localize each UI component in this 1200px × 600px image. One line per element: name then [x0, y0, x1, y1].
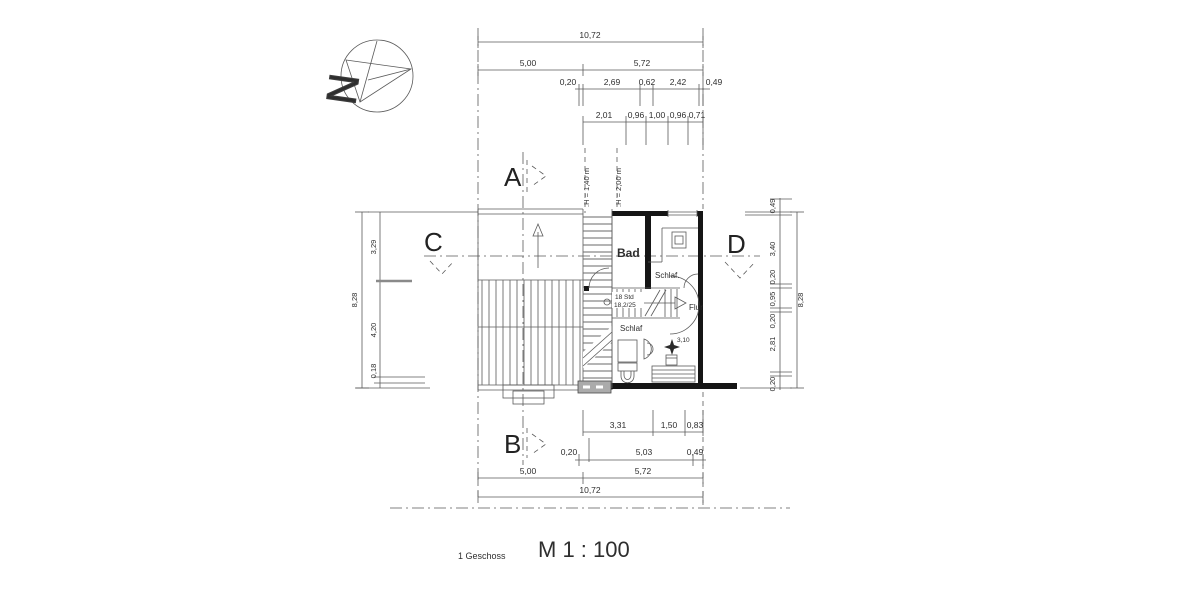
floorplan-canvas: N A B C D 10,72 5,00 5,72: [0, 0, 1200, 600]
dim-brow1-1: 1,50: [661, 420, 678, 430]
dim-right-seg6: 0,20: [768, 377, 777, 392]
floor-label: 1 Geschoss: [458, 551, 506, 561]
section-label-d: D: [727, 229, 746, 259]
scale-label: M 1 : 100: [538, 537, 630, 562]
titles: 1 Geschoss M 1 : 100: [458, 537, 630, 562]
terrace-decking-hatch: [482, 280, 580, 385]
dim-brow2-2: 0,49: [687, 447, 704, 457]
dim-left-seg2: 0,18: [369, 364, 378, 379]
toilet-fixture: [618, 363, 637, 383]
height-label-200: .H = 2,00 m: [614, 168, 623, 207]
dim-brow3-0: 5,00: [520, 466, 537, 476]
dim-brow1-0: 3,31: [610, 420, 627, 430]
dim-row3-4: 0,49: [706, 77, 723, 87]
dim-right-seg2: 0,20: [768, 270, 777, 285]
door-swing-upper: [684, 274, 698, 288]
dim-row4-0: 2,01: [596, 110, 613, 120]
dim-row4-3: 0,96: [670, 110, 687, 120]
section-marker-d: D: [725, 229, 755, 278]
north-letter: N: [317, 71, 368, 108]
section-label-b: B: [504, 429, 521, 459]
dim-left-total: 8,28: [350, 293, 359, 308]
room-label-schlaf-upper: Schlaf.: [655, 271, 679, 280]
dim-top-5m: 5,00: [520, 58, 537, 68]
exterior-stair: [583, 209, 612, 390]
room-label-flur: Flur: [689, 303, 703, 312]
north-symbol: N: [317, 40, 413, 112]
height-reference-lines: .H = 1,40 m .H = 2,00 m: [582, 148, 623, 213]
dim-left-seg1: 4,20: [369, 323, 378, 338]
bottom-wall: [610, 383, 737, 389]
dim-right-seg3: 0,95: [768, 292, 777, 307]
dim-left-seg0: 3,29: [369, 240, 378, 255]
room-labels: Bad Schlaf. Flur Schlaf: [617, 246, 703, 333]
section-marker-b: B: [504, 428, 546, 459]
spot-height-value: 3,10: [677, 337, 690, 344]
dim-brow2-0: 0,20: [561, 447, 578, 457]
wardrobe: [618, 340, 637, 362]
right-wall: [698, 211, 703, 385]
section-marker-a: A: [504, 160, 546, 192]
spot-height-marker: 3,10: [664, 337, 690, 355]
dim-brow1-2: 0,83: [687, 420, 704, 430]
dim-row3-0: 0,20: [560, 77, 577, 87]
dim-row3-2: 0,62: [639, 77, 656, 87]
dim-bottom-total: 10,72: [579, 485, 601, 495]
dim-right-seg5: 2,81: [768, 337, 777, 352]
schlaf-upper-fixtures: [648, 228, 698, 262]
dim-top-total: 10,72: [579, 30, 601, 40]
dim-row4-1: 0,96: [628, 110, 645, 120]
height-label-140: .H = 1,40 m: [582, 168, 591, 207]
terrace: [478, 209, 583, 404]
left-dimensions: 8,28 3,29 4,20 0,18: [350, 212, 478, 388]
dim-right-seg0: 0,49: [768, 199, 777, 214]
right-dimensions: 0,49 3,40 0,20 0,95 0,20 2,81 0,20 8,28: [740, 198, 805, 391]
dim-brow2-1: 5,03: [636, 447, 653, 457]
section-label-c: C: [424, 227, 443, 257]
section-label-a: A: [504, 162, 522, 192]
floorplan-page: N A B C D 10,72 5,00 5,72: [0, 0, 1200, 600]
stair-note-line1: 18 Std: [615, 294, 634, 301]
bad-schlaf-divider-wall: [645, 216, 651, 291]
top-wall-left: [612, 211, 668, 216]
reference-lines: [390, 28, 790, 508]
dim-right-seg4: 0,20: [768, 314, 777, 329]
schlaf-lower-furniture: 3,10: [618, 337, 695, 383]
dim-row3-1: 2,69: [604, 77, 621, 87]
dim-brow3-1: 5,72: [635, 466, 652, 476]
dim-row4-4: 0,71: [689, 110, 706, 120]
slope-arrow: [533, 224, 543, 268]
dim-right-total: 8,28: [796, 293, 805, 308]
desk-and-chair: [652, 355, 695, 382]
room-label-bad: Bad: [617, 246, 640, 260]
dim-top-572: 5,72: [634, 58, 651, 68]
stair-note-line2: 18,2/25: [614, 302, 636, 309]
dim-row3-3: 2,42: [670, 77, 687, 87]
top-dimensions: 10,72 5,00 5,72 0,20 2,69 0,62 2,42 0,49…: [478, 30, 723, 145]
terrace-steps: [503, 385, 554, 404]
balcony-element: [578, 381, 611, 393]
dim-row4-2: 1,00: [649, 110, 666, 120]
section-marker-c: C: [424, 227, 454, 274]
room-label-schlaf-lower: Schlaf: [620, 324, 643, 333]
window-top: [668, 210, 697, 217]
dim-right-seg1: 3,40: [768, 242, 777, 257]
armchair: [644, 339, 653, 359]
